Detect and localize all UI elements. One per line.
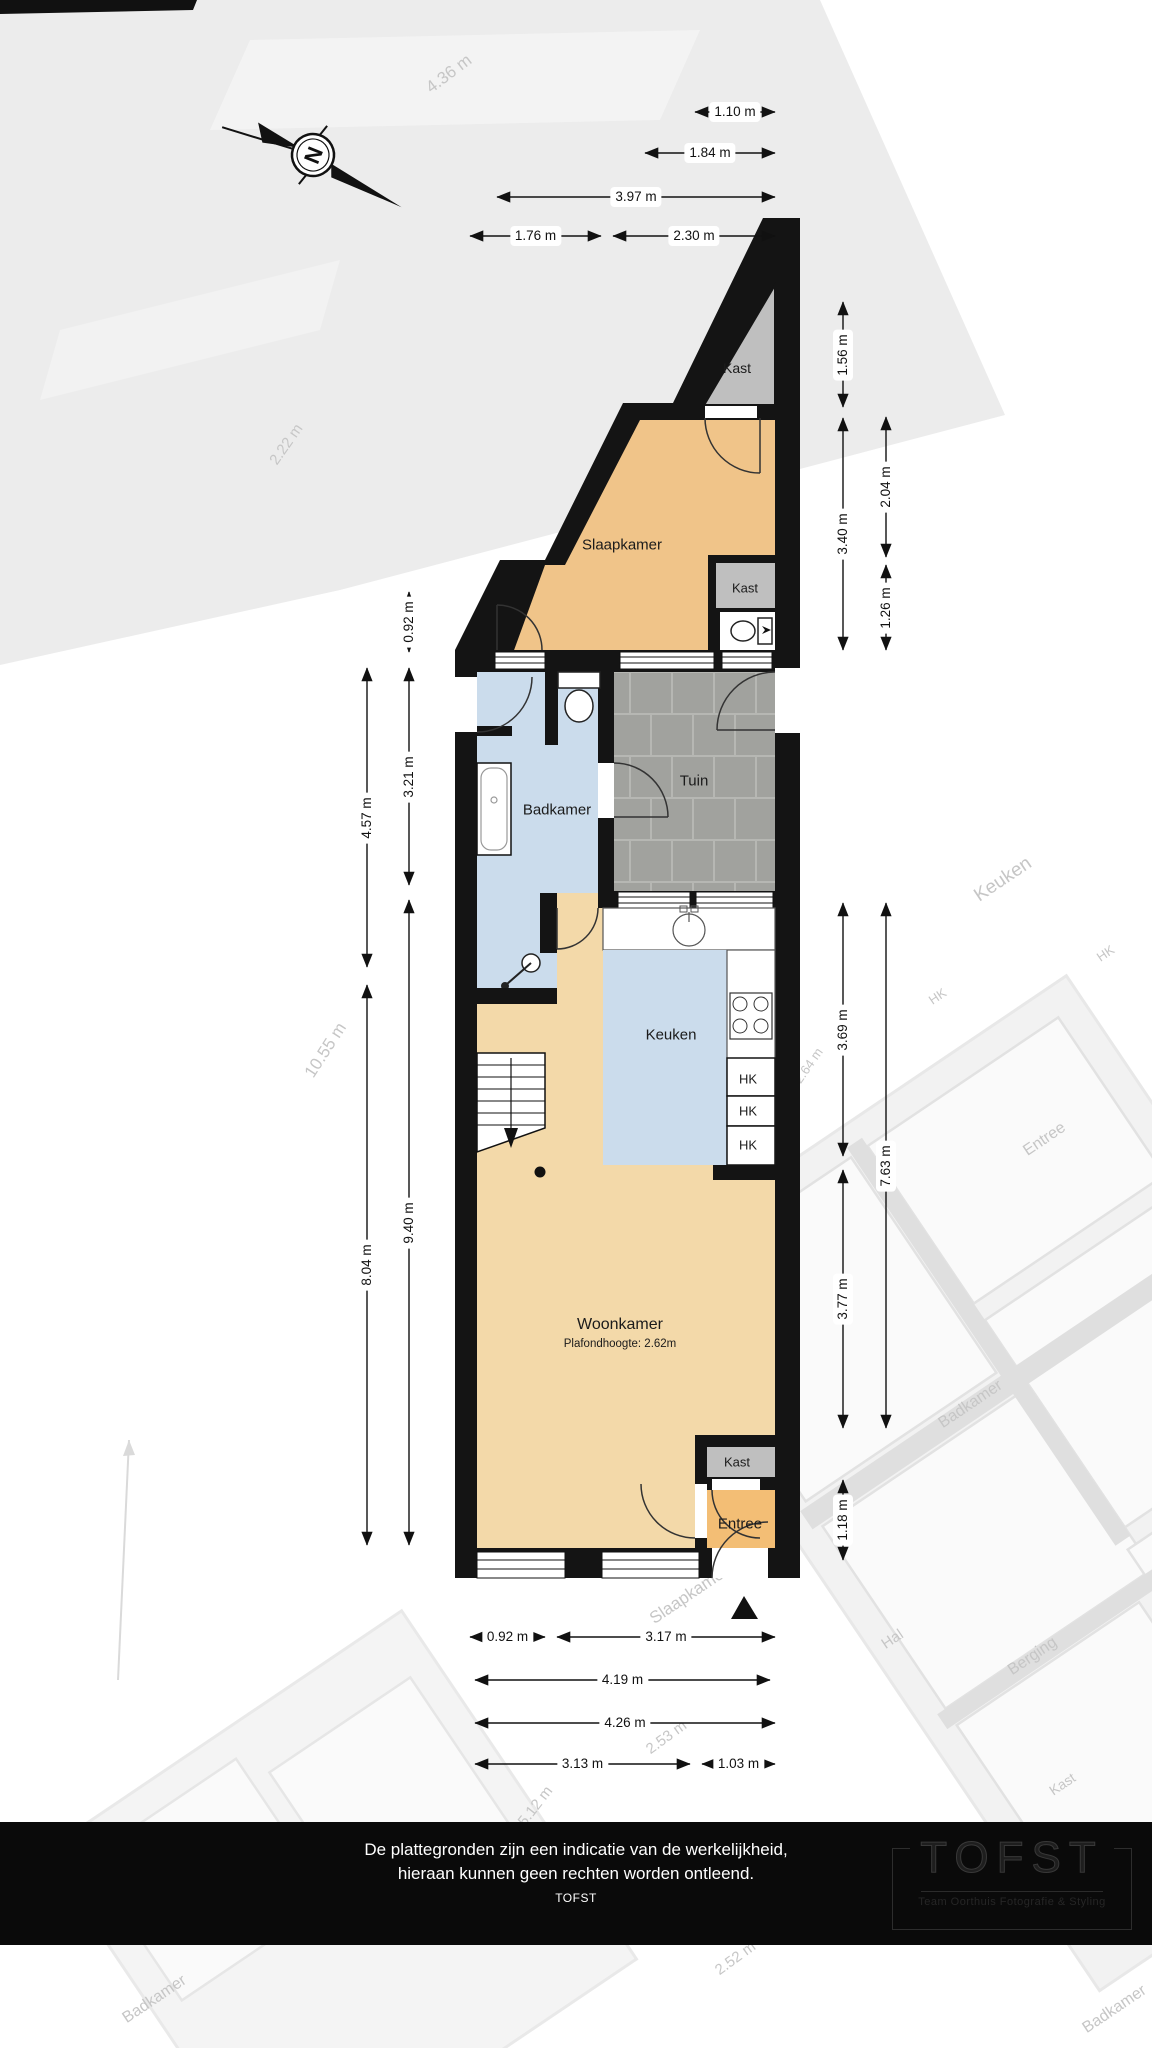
hk-box — [727, 1126, 775, 1165]
window — [722, 652, 772, 669]
tofst-logo-rule — [921, 1891, 1103, 1892]
footer-disclaimer-bar: De plattegronden zijn een indicatie van … — [0, 1822, 1152, 1945]
window — [696, 892, 773, 908]
window — [495, 652, 545, 669]
window — [602, 1552, 699, 1578]
room-kast-small — [716, 563, 775, 608]
front-door-opening — [712, 1548, 768, 1578]
watermark-label: 10.55 m — [301, 1019, 350, 1081]
room-kast-bottom — [707, 1447, 775, 1477]
entrance-arrow — [731, 1596, 758, 1619]
tofst-logo-subtitle: Team Oorthuis Fotografie & Styling — [893, 1896, 1131, 1908]
tofst-logo-title: TOFST — [893, 1833, 1131, 1883]
tofst-logo: TOFST Team Oorthuis Fotografie & Styling — [892, 1848, 1132, 1930]
watermark-label: HK — [1094, 942, 1118, 965]
floorplan-drawing: 4.36 m2.22 m10.55 mKeukenHKHK2.64 mEntre… — [0, 0, 1152, 2048]
garden-door-opening — [775, 668, 800, 733]
room-entree — [707, 1490, 775, 1548]
floorplan-page: 4.36 m2.22 m10.55 mKeukenHKHK2.64 mEntre… — [0, 0, 1152, 2048]
hk-box — [727, 1096, 775, 1126]
watermark-label: Keuken — [970, 853, 1035, 906]
room-tuin — [614, 672, 775, 893]
stove-icon — [730, 993, 772, 1039]
watermark-label: Badkamer — [1080, 1981, 1151, 2036]
room-keuken — [603, 950, 727, 1165]
window — [477, 1552, 565, 1578]
window — [620, 652, 714, 669]
column-dot — [535, 1167, 546, 1178]
side-door-opening — [455, 677, 477, 732]
watermark-label: HK — [926, 985, 950, 1008]
window — [618, 892, 690, 908]
bathtub-icon — [477, 763, 511, 855]
hk-box — [727, 1058, 775, 1096]
